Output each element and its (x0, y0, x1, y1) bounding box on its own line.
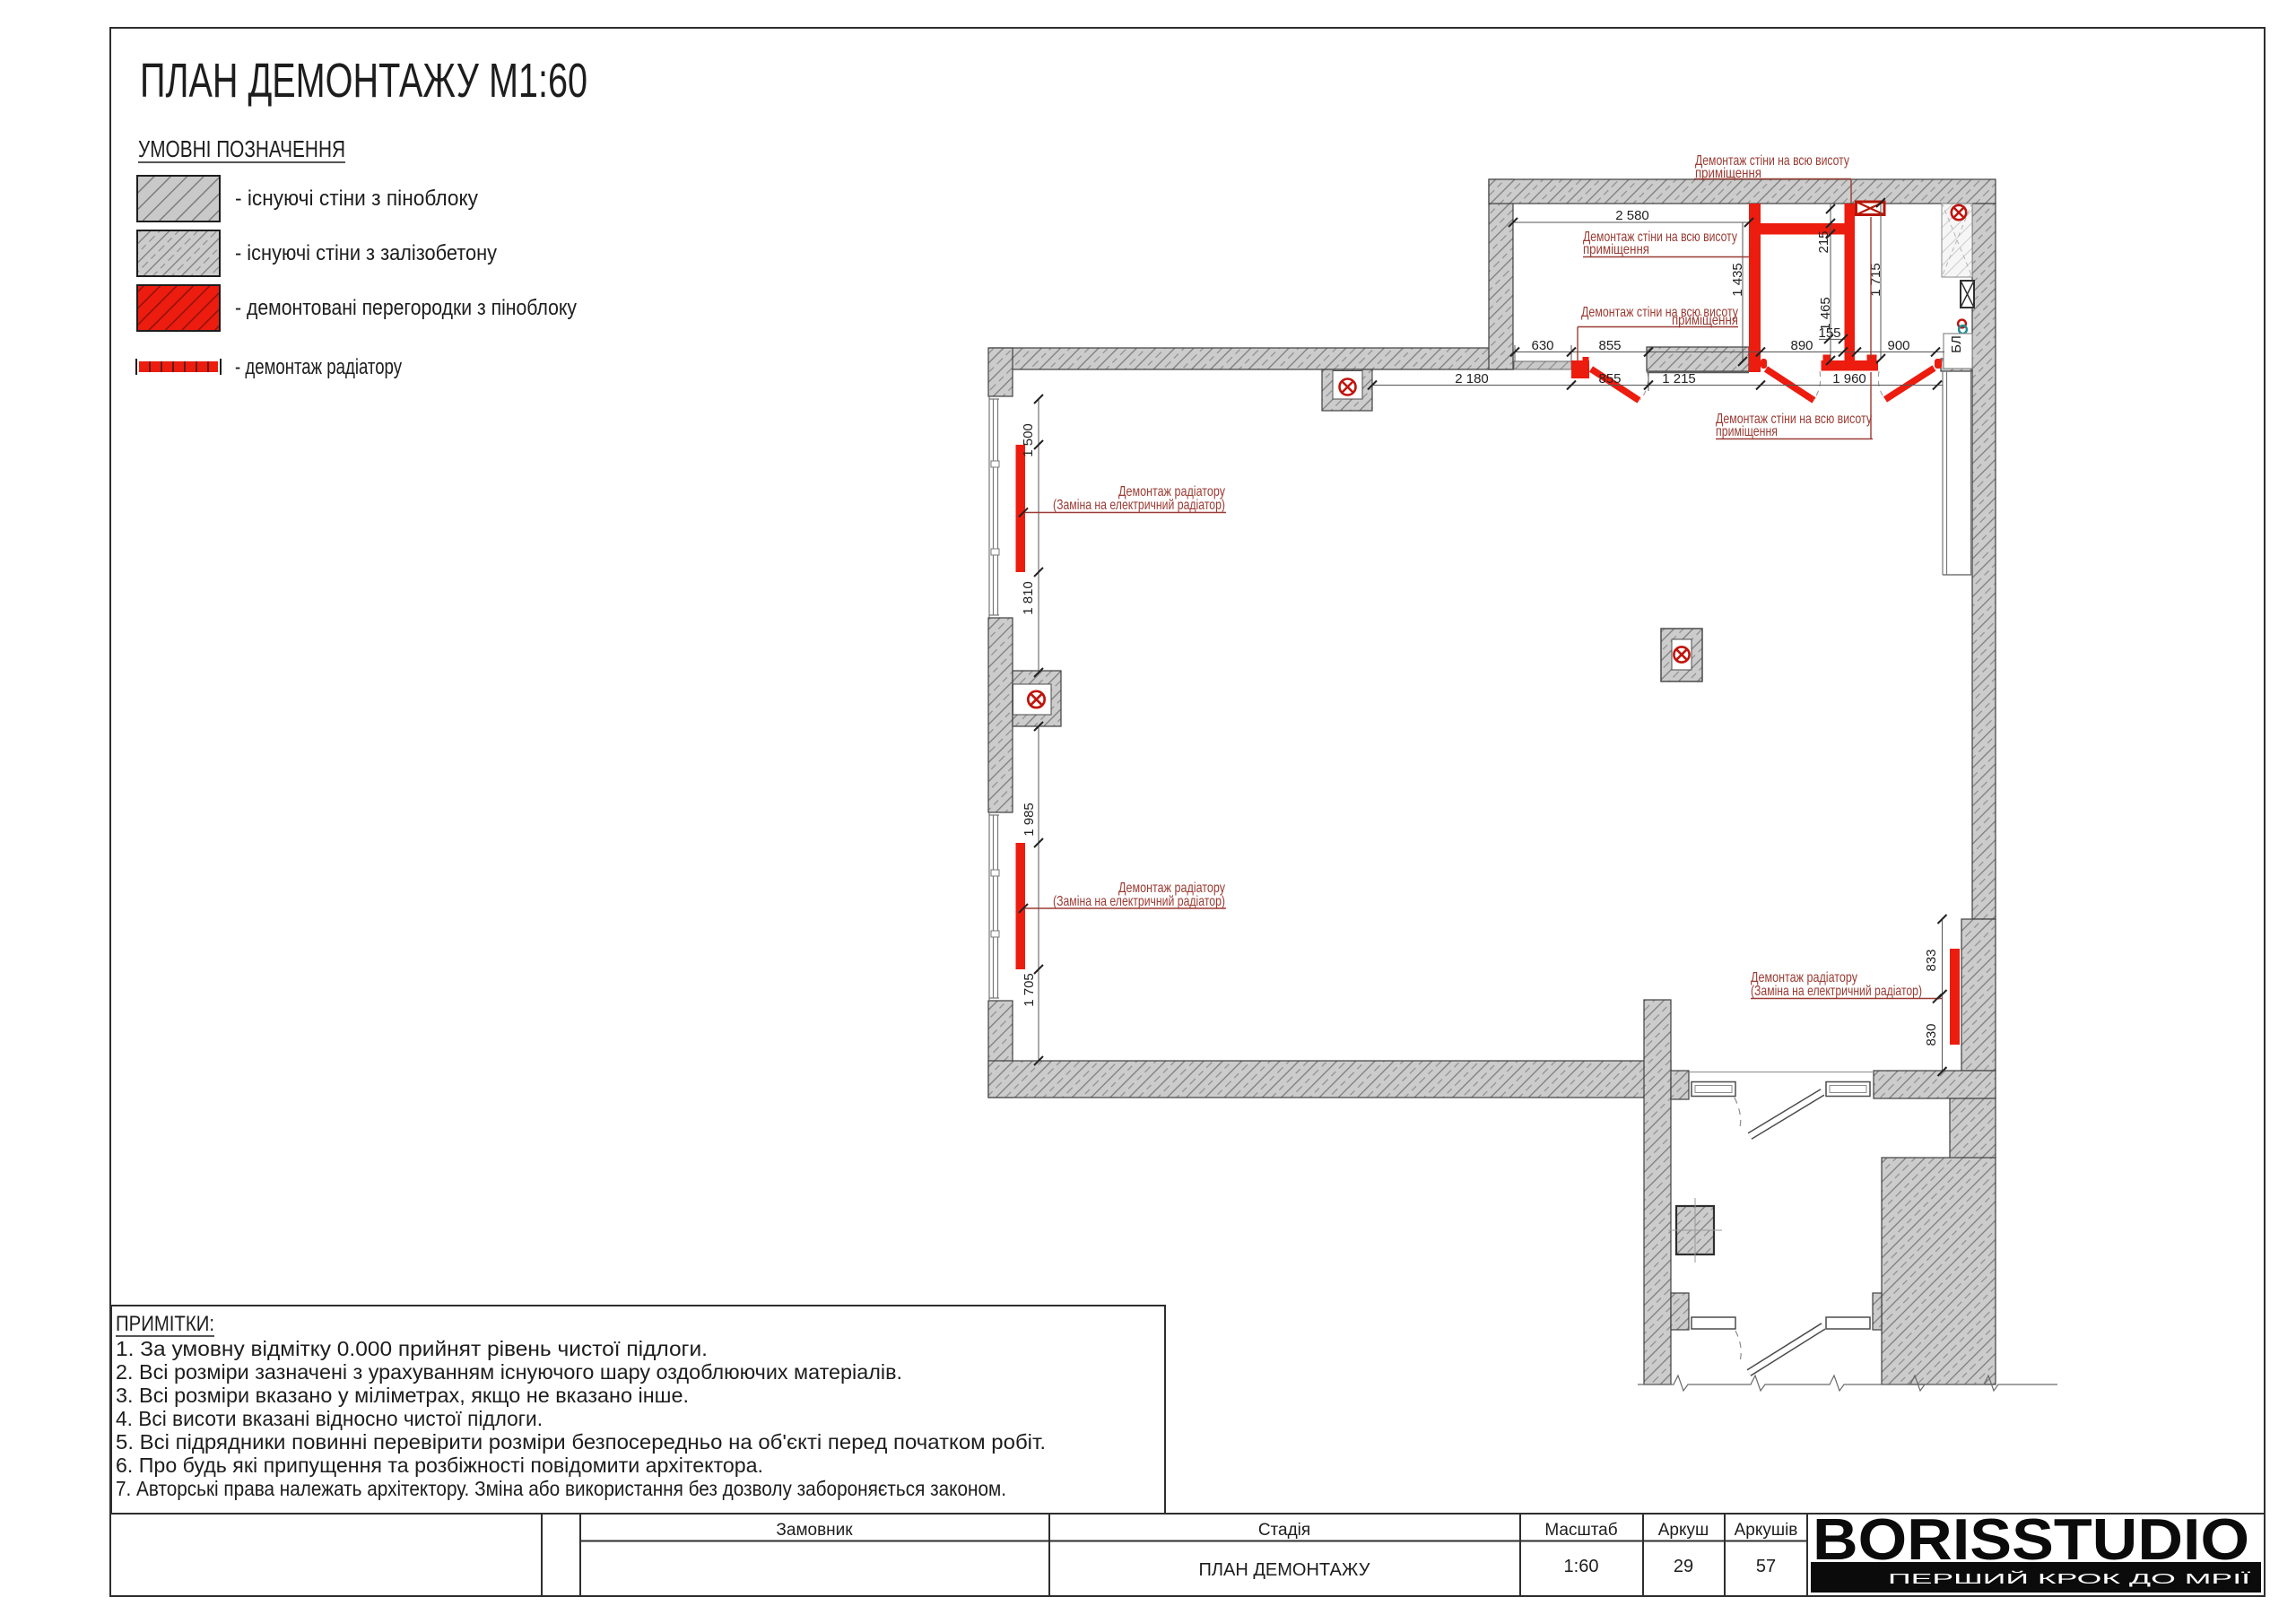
svg-text:215: 215 (1816, 230, 1831, 253)
svg-text:1 500: 1 500 (1021, 423, 1036, 457)
svg-text:1 810: 1 810 (1021, 581, 1036, 615)
svg-text:1. За умовну відмітку 0.000 пр: 1. За умовну відмітку 0.000 прийнят ріве… (116, 1337, 708, 1360)
svg-text:1 435: 1 435 (1730, 263, 1745, 297)
svg-text:Замовник: Замовник (776, 1521, 853, 1540)
svg-text:830: 830 (1924, 1023, 1939, 1046)
svg-text:4. Всі висоти вказані відносно: 4. Всі висоти вказані відносно чистої пі… (116, 1407, 543, 1430)
svg-text:приміщення: приміщення (1672, 313, 1738, 328)
svg-text:890: 890 (1790, 338, 1813, 353)
svg-text:1 215: 1 215 (1662, 371, 1696, 386)
svg-text:Аркушів: Аркушів (1735, 1521, 1798, 1540)
svg-text:855: 855 (1598, 371, 1621, 386)
svg-text:6. Про будь які припущення та: 6. Про будь які припущення та розбіжност… (116, 1454, 763, 1477)
svg-text:приміщення: приміщення (1583, 242, 1649, 257)
svg-text:(Заміна на електричний радіато: (Заміна на електричний радіатор) (1053, 894, 1225, 909)
svg-text:ПЕРШИЙ КРОК ДО МРІЇ: ПЕРШИЙ КРОК ДО МРІЇ (1888, 1570, 2251, 1587)
svg-text:ПРИМІТКИ:: ПРИМІТКИ: (116, 1312, 214, 1336)
svg-text:3. Всі розміри вказано у мілім: 3. Всі розміри вказано у міліметрах, якщ… (116, 1384, 689, 1407)
svg-text:- демонтаж радіатору: - демонтаж радіатору (235, 355, 402, 379)
svg-text:(Заміна на електричний радіато: (Заміна на електричний радіатор) (1053, 498, 1225, 513)
svg-text:Масштаб: Масштаб (1544, 1521, 1617, 1540)
svg-text:ПЛАН ДЕМОНТАЖУ М1:60: ПЛАН ДЕМОНТАЖУ М1:60 (140, 54, 587, 108)
svg-text:2 180: 2 180 (1455, 371, 1489, 386)
svg-text:1 960: 1 960 (1832, 371, 1866, 386)
svg-text:- існуючі стіни з піноблоку: - існуючі стіни з піноблоку (235, 187, 478, 211)
svg-text:630: 630 (1531, 338, 1553, 353)
svg-text:- існуючі стіни з залізобетону: - існуючі стіни з залізобетону (235, 241, 497, 265)
svg-text:УМОВНІ ПОЗНАЧЕННЯ: УМОВНІ ПОЗНАЧЕННЯ (138, 135, 345, 162)
svg-text:1:60: 1:60 (1564, 1557, 1599, 1576)
svg-text:Стадія: Стадія (1258, 1521, 1310, 1540)
svg-text:БЛ: БЛ (1949, 335, 1964, 353)
svg-text:приміщення: приміщення (1716, 424, 1778, 439)
svg-text:7. Авторські права належать ар: 7. Авторські права належать архітектору.… (116, 1477, 1006, 1500)
svg-text:5. Всі підрядники повинні пере: 5. Всі підрядники повинні перевірити роз… (116, 1430, 1046, 1454)
svg-text:Аркуш: Аркуш (1658, 1521, 1709, 1540)
svg-text:2 580: 2 580 (1615, 208, 1649, 223)
svg-text:29: 29 (1674, 1557, 1693, 1576)
svg-text:900: 900 (1887, 338, 1909, 353)
svg-text:1 465: 1 465 (1818, 297, 1833, 331)
svg-text:855: 855 (1598, 338, 1621, 353)
svg-text:ПЛАН ДЕМОНТАЖУ: ПЛАН ДЕМОНТАЖУ (1199, 1560, 1370, 1580)
svg-text:- демонтовані перегородки з пі: - демонтовані перегородки з піноблоку (235, 296, 577, 320)
svg-text:57: 57 (1756, 1557, 1776, 1576)
svg-text:833: 833 (1924, 949, 1939, 971)
svg-text:1 705: 1 705 (1022, 973, 1037, 1007)
svg-text:1 985: 1 985 (1022, 803, 1037, 837)
svg-text:(Заміна на електричний радіато: (Заміна на електричний радіатор) (1751, 984, 1922, 999)
svg-text:2. Всі розміри зазначені з ура: 2. Всі розміри зазначені з урахуванням і… (116, 1360, 902, 1384)
